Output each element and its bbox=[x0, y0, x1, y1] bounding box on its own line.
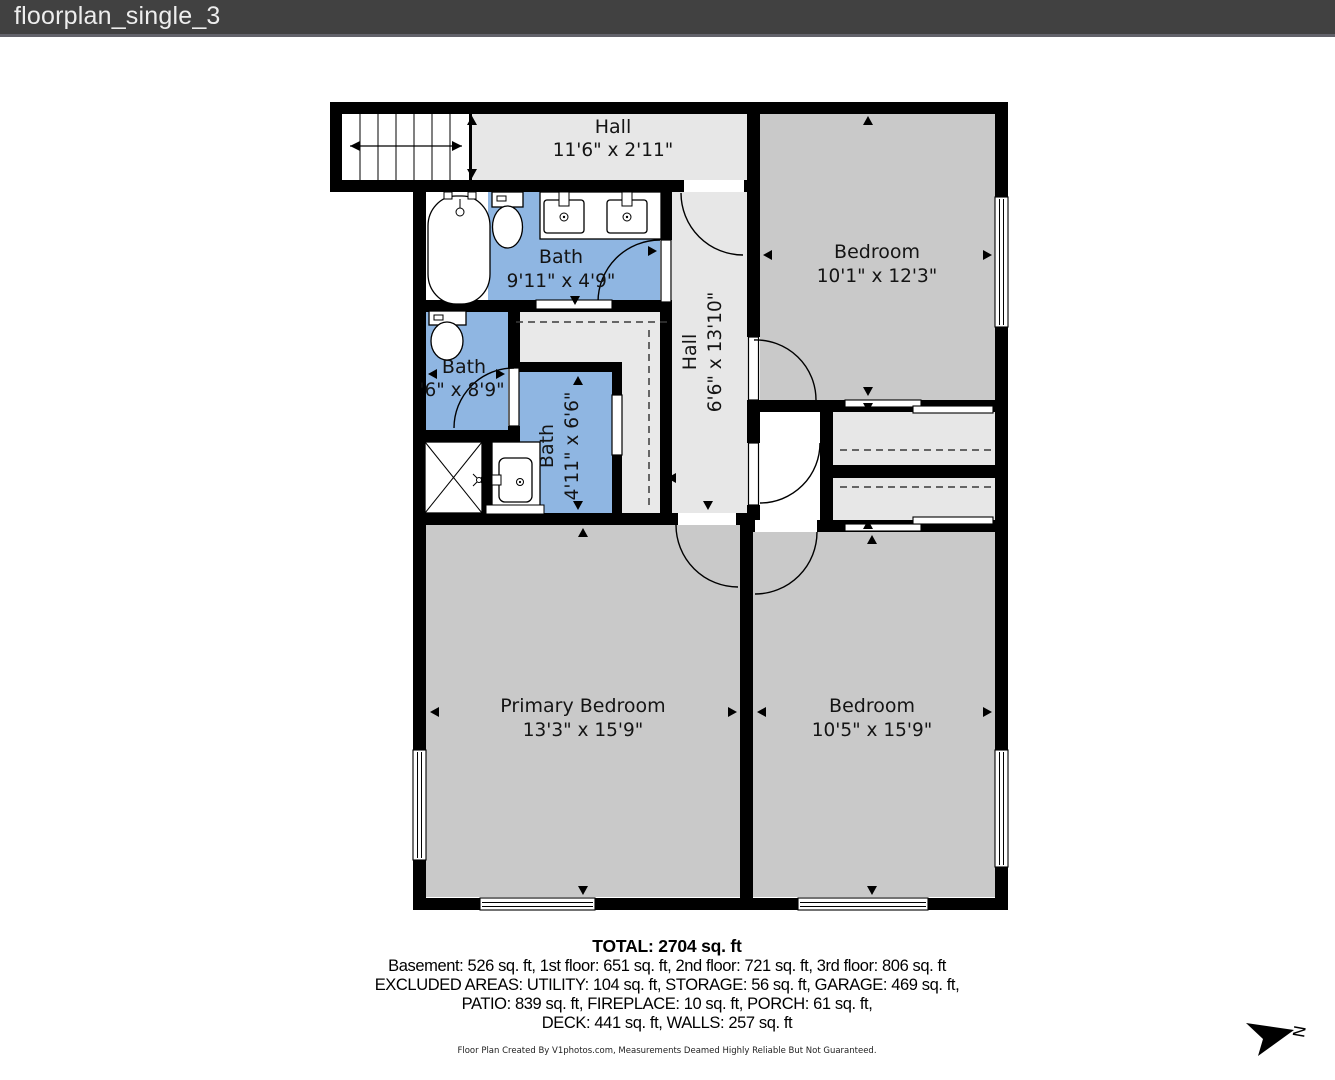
bedroom-right-label: Bedroom bbox=[829, 695, 915, 717]
primary-bedroom-label: Primary Bedroom bbox=[500, 695, 665, 717]
bathtub-icon bbox=[428, 192, 490, 304]
closet1-floor bbox=[833, 412, 995, 465]
bedroom-right-dims: 10'5" x 15'9" bbox=[812, 720, 933, 741]
bath-mid-label: Bath 4'11" x 6'6" bbox=[534, 392, 586, 501]
north-arrow-icon: N bbox=[1246, 1023, 1309, 1056]
floorplan-canvas: N bbox=[0, 0, 1335, 1080]
toilet-icon bbox=[492, 192, 523, 248]
bath-left-dims: '6" x 8'9" bbox=[419, 380, 504, 401]
hall-top-dims: 11'6" x 2'11" bbox=[553, 140, 674, 161]
excluded-areas-2: PATIO: 839 sq. ft, FIREPLACE: 10 sq. ft,… bbox=[334, 995, 1000, 1014]
disclaimer: Floor Plan Created By V1photos.com, Meas… bbox=[334, 1046, 1000, 1056]
total-area: TOTAL: 2704 sq. ft bbox=[334, 936, 1000, 957]
double-sink-vanity-icon bbox=[540, 192, 661, 239]
shower-icon bbox=[425, 442, 485, 513]
vestibule-floor bbox=[760, 412, 820, 520]
bath-top-dims: 9'11" x 4'9" bbox=[507, 271, 616, 292]
excluded-areas-1: EXCLUDED AREAS: UTILITY: 104 sq. ft, STO… bbox=[334, 976, 1000, 995]
bedroom-top-label: Bedroom bbox=[834, 241, 920, 263]
hall-vertical-label: Hall 6'6" x 13'10" bbox=[677, 292, 729, 413]
primary-bedroom-dims: 13'3" x 15'9" bbox=[523, 720, 644, 741]
floor-areas: Basement: 526 sq. ft, 1st floor: 651 sq.… bbox=[334, 957, 1000, 976]
excluded-areas-3: DECK: 441 sq. ft, WALLS: 257 sq. ft bbox=[334, 1014, 1000, 1033]
floorplan-viewer: { "titlebar": { "title": "floorplan_sing… bbox=[0, 0, 1335, 1080]
bath-left-label: Bath bbox=[442, 356, 486, 378]
hall-top-label: Hall bbox=[595, 116, 632, 138]
walkin-closet-floor-top bbox=[512, 310, 672, 362]
bath-top-label: Bath bbox=[539, 246, 583, 268]
closet2-floor bbox=[833, 478, 995, 520]
north-label: N bbox=[1288, 1024, 1309, 1039]
bedroom-top-dims: 10'1" x 12'3" bbox=[817, 266, 938, 287]
